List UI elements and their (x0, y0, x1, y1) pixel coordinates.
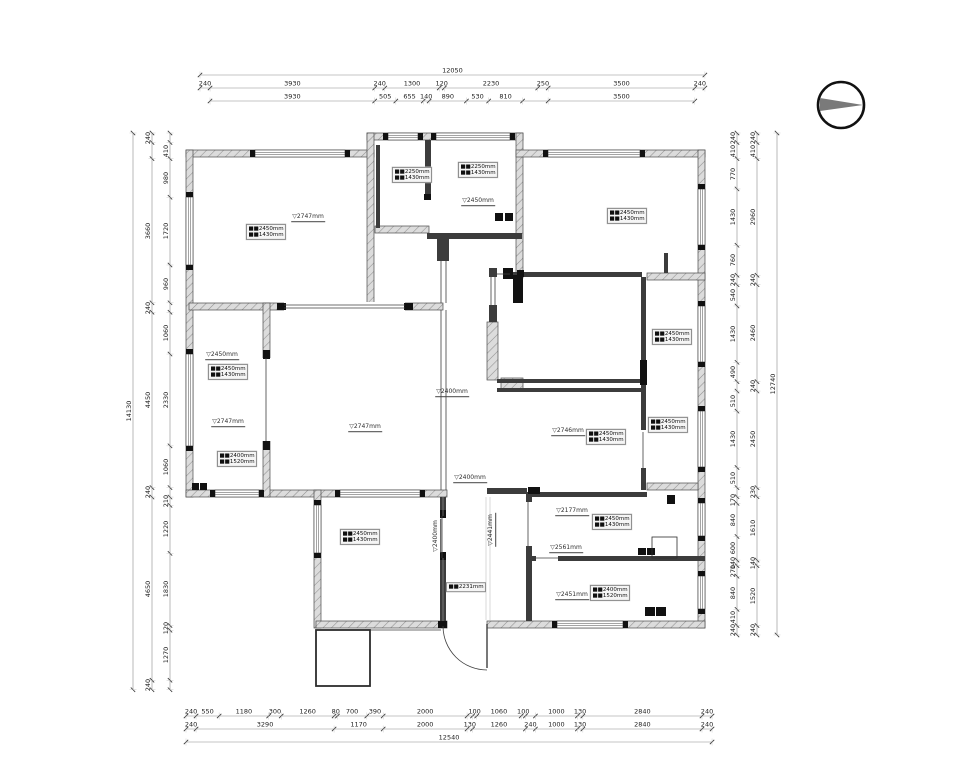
level-mark-label: ▽2441mm (488, 513, 496, 547)
dim-label: 1260 (491, 722, 508, 729)
pier-block (645, 607, 655, 616)
pier-block (404, 303, 413, 310)
window (186, 197, 193, 265)
pier-block (200, 483, 207, 490)
dim-label: 2330 (163, 392, 170, 409)
window-jamb (698, 467, 705, 472)
level-mark-label: ▽2450mm (205, 352, 239, 360)
pier-block (263, 350, 270, 359)
dim-label: 12540 (439, 735, 460, 742)
level-mark-label: ▽2746mm (551, 428, 585, 436)
window (698, 306, 705, 362)
window-jamb (186, 265, 193, 270)
pier-block (438, 621, 447, 628)
window (436, 133, 510, 140)
pier-block (513, 275, 523, 303)
dim-label: 1260 (299, 709, 316, 716)
dim-label: 410 (730, 611, 737, 623)
window (314, 505, 321, 553)
partition-wall (664, 253, 668, 273)
window-jamb (210, 490, 215, 497)
dim-label: 240 (185, 709, 197, 716)
dim-label: 410 (163, 144, 170, 156)
partition-wall (376, 145, 380, 228)
dim-label: 510 (730, 395, 737, 407)
dim-label: 2230 (483, 81, 500, 88)
dim-label: 1060 (163, 325, 170, 342)
dim-label: 1300 (404, 81, 421, 88)
dim-label: 4450 (145, 392, 152, 409)
dim-label: 240 (374, 81, 386, 88)
partition-wall (526, 556, 536, 561)
dim-label: 1170 (350, 722, 367, 729)
dim-label: 80 (332, 709, 340, 716)
dim-label: 840 (730, 587, 737, 599)
dim-label: 1720 (163, 223, 170, 240)
window-jamb (314, 500, 321, 505)
dim-label: 1520 (750, 587, 757, 604)
dim-label: 240 (730, 274, 737, 286)
dim-label: 760 (730, 254, 737, 266)
dim-label: 270 (730, 565, 737, 577)
window-jamb (383, 133, 388, 140)
dim-label: 2960 (750, 209, 757, 226)
dim-label: 230 (750, 486, 757, 498)
dim-label: 1000 (548, 709, 565, 716)
pier-block (277, 303, 286, 310)
window-height-tag: ■■2450mm■■1430mm (592, 514, 632, 530)
dim-label: 240 (145, 301, 152, 313)
dim-label: 3500 (613, 81, 630, 88)
partition-wall (489, 305, 497, 322)
window (255, 150, 345, 157)
dim-label: 1430 (730, 431, 737, 448)
dim-label: 240 (185, 722, 197, 729)
level-mark-label: ▽2747mm (211, 419, 245, 427)
dim-label: 1270 (163, 647, 170, 664)
dim-label: 170 (730, 494, 737, 506)
window-jamb (420, 490, 425, 497)
window-jamb (698, 406, 705, 411)
window-height-tag: ■■2450mm■■1430mm (246, 224, 286, 240)
window (340, 490, 420, 497)
partition-wall (641, 277, 646, 430)
dim-label: 12740 (770, 374, 777, 395)
dim-label: 140 (750, 557, 757, 569)
window-jamb (186, 446, 193, 451)
wall (375, 226, 429, 233)
dim-label: 890 (442, 94, 454, 101)
window (388, 133, 418, 140)
wall (487, 322, 498, 380)
window-jamb (552, 621, 557, 628)
level-mark-label: ▽2400mm (453, 475, 487, 483)
dim-label: 240 (524, 722, 536, 729)
wall (367, 133, 374, 303)
window (548, 150, 640, 157)
dim-label: 540 (730, 289, 737, 301)
level-mark-label: ▽2561mm (549, 545, 583, 553)
level-mark-label: ▽2747mm (291, 214, 325, 222)
dim-label: 240 (199, 81, 211, 88)
dim-label: 130 (574, 722, 586, 729)
dim-label: 530 (471, 94, 483, 101)
dim-label: 300 (269, 709, 281, 716)
wall (647, 483, 698, 490)
dim-label: 12050 (442, 68, 463, 75)
window-jamb (250, 150, 255, 157)
floor-plan-page: 1205024039302401300120223025035002403930… (0, 0, 975, 780)
dim-label: 130 (574, 709, 586, 716)
partition-wall (489, 268, 497, 277)
level-mark-label: ▽2450mm (461, 198, 495, 206)
floor-plan-canvas (0, 0, 975, 780)
dim-label: 2840 (634, 709, 651, 716)
partition-wall (437, 239, 449, 261)
balcony-outline (316, 630, 370, 686)
dimension-lines-layer (130, 72, 781, 746)
dim-label: 390 (369, 709, 381, 716)
dim-label: 240 (750, 380, 757, 392)
dim-label: 240 (145, 486, 152, 498)
dim-label: 960 (163, 278, 170, 290)
window-jamb (698, 362, 705, 367)
dim-label: 1060 (163, 458, 170, 475)
dim-label: 240 (145, 679, 152, 691)
dim-label: 810 (499, 94, 511, 101)
partition-wall (427, 233, 522, 239)
window-jamb (345, 150, 350, 157)
dim-label: 510 (730, 471, 737, 483)
window-jamb (698, 609, 705, 614)
window-height-tag: ■■2400mm■■1520mm (590, 585, 630, 601)
partition-wall (510, 272, 642, 277)
window-height-tag: ■■2250mm■■1430mm (458, 162, 498, 178)
dim-label: 210 (163, 495, 170, 507)
dim-label: 250 (537, 81, 549, 88)
window-jamb (623, 621, 628, 628)
dim-label: 100 (468, 709, 480, 716)
dim-label: 130 (464, 722, 476, 729)
dim-label: 980 (163, 172, 170, 184)
dim-label: 240 (750, 624, 757, 636)
window-jamb (698, 184, 705, 189)
height-tag: ■■2231mm (446, 582, 486, 592)
dim-label: 1610 (750, 520, 757, 537)
window (557, 621, 623, 628)
window-jamb (698, 536, 705, 541)
partition-wall (530, 492, 647, 497)
partition-wall (641, 468, 646, 490)
pier-block (263, 441, 270, 450)
dim-label: 1430 (730, 209, 737, 226)
wall-opening (284, 302, 405, 311)
dim-label: 140 (420, 94, 432, 101)
wall-opening (262, 358, 271, 441)
window (698, 576, 705, 609)
level-mark-label: ▽2400mm (433, 519, 441, 553)
window-jamb (418, 133, 423, 140)
partition-wall (487, 488, 527, 494)
window-height-tag: ■■2450mm■■1430mm (652, 329, 692, 345)
level-mark-label: ▽2177mm (555, 508, 589, 516)
window-height-tag: ■■2450mm■■1430mm (340, 529, 380, 545)
dim-label: 3290 (257, 722, 274, 729)
dim-label: 3930 (284, 94, 301, 101)
partition-wall (558, 556, 705, 561)
dim-label: 2460 (750, 325, 757, 342)
dim-label: 120 (163, 622, 170, 634)
dim-label: 1060 (491, 709, 508, 716)
dim-label: 700 (346, 709, 358, 716)
window-jamb (640, 150, 645, 157)
window-height-tag: ■■2450mm■■1430mm (208, 364, 248, 380)
window-jamb (698, 301, 705, 306)
level-mark-label: ▽2747mm (348, 424, 382, 432)
pier-block (638, 548, 646, 555)
window-height-tag: ■■2450mm■■1430mm (607, 208, 647, 224)
window-jamb (510, 133, 515, 140)
dim-label: 655 (403, 94, 415, 101)
pier-block (528, 487, 540, 494)
window (698, 189, 705, 245)
wall (647, 273, 705, 280)
dim-label: 240 (701, 709, 713, 716)
window-jamb (543, 150, 548, 157)
level-mark-label: ▽2400mm (435, 389, 469, 397)
window-jamb (431, 133, 436, 140)
window-height-tag: ■■2250mm■■1430mm (392, 167, 432, 183)
dim-label: 2840 (634, 722, 651, 729)
window-jamb (314, 553, 321, 558)
dim-label: 240 (701, 722, 713, 729)
window (698, 503, 705, 536)
door-swing-arc (443, 626, 487, 670)
dim-label: 2000 (417, 722, 434, 729)
pier-block (503, 268, 513, 279)
dim-label: 410 (750, 144, 757, 156)
dim-label: 240 (730, 624, 737, 636)
window-height-tag: ■■2450mm■■1430mm (586, 429, 626, 445)
partition-wall (497, 388, 642, 392)
dim-label: 410 (730, 144, 737, 156)
north-compass-icon (818, 82, 864, 128)
pier-block (424, 194, 431, 200)
dim-label: 490 (730, 366, 737, 378)
window-jamb (698, 498, 705, 503)
pier-block (505, 213, 513, 221)
dim-label: 240 (730, 132, 737, 144)
dim-label: 3660 (145, 222, 152, 239)
dim-label: 1830 (163, 581, 170, 598)
dim-label: 3930 (284, 81, 301, 88)
dim-label: 240 (694, 81, 706, 88)
pier-block (667, 495, 675, 504)
window-jamb (186, 349, 193, 354)
dim-label: 1000 (548, 722, 565, 729)
window-jamb (259, 490, 264, 497)
window-height-tag: ■■2400mm■■1520mm (217, 451, 257, 467)
window-jamb (698, 245, 705, 250)
pier-block (192, 483, 199, 490)
window-jamb (698, 571, 705, 576)
pier-block (647, 548, 655, 555)
dim-label: 3500 (613, 94, 630, 101)
dim-label: 4650 (145, 580, 152, 597)
dim-label: 770 (730, 168, 737, 180)
balcony-outline (652, 537, 677, 558)
window-jamb (186, 192, 193, 197)
partition-wall (497, 379, 642, 383)
dim-label: 1430 (730, 326, 737, 343)
dim-label: 100 (517, 709, 529, 716)
dim-label: 840 (730, 514, 737, 526)
dim-label: 1180 (236, 709, 253, 716)
dim-label: 2000 (417, 709, 434, 716)
level-mark-label: ▽2451mm (555, 592, 589, 600)
dim-label: 2450 (750, 431, 757, 448)
dim-label: 1220 (163, 521, 170, 538)
dim-label: 240 (750, 132, 757, 144)
pier-block (495, 213, 503, 221)
dim-label: 240 (750, 274, 757, 286)
dim-label: 600 (730, 542, 737, 554)
dim-label: 120 (436, 81, 448, 88)
window (215, 490, 259, 497)
pier-block (656, 607, 666, 616)
pier-block (640, 360, 647, 385)
dim-label: 550 (201, 709, 213, 716)
dim-label: 505 (379, 94, 391, 101)
dim-label: 14130 (126, 401, 133, 422)
window-height-tag: ■■2450mm■■1430mm (648, 417, 688, 433)
wall (316, 621, 447, 628)
dim-label: 240 (145, 132, 152, 144)
window (698, 411, 705, 467)
compass-needle (820, 98, 863, 111)
pier-block (517, 270, 524, 277)
window (186, 354, 193, 446)
window-jamb (335, 490, 340, 497)
